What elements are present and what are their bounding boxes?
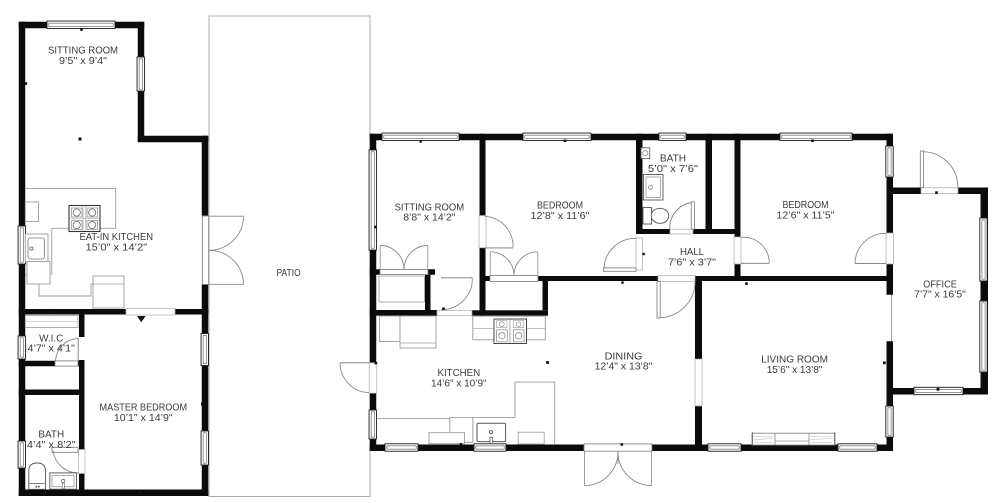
svg-text:EAT-IN KITCHEN: EAT-IN KITCHEN bbox=[80, 232, 154, 243]
svg-text:BATH: BATH bbox=[660, 154, 686, 165]
svg-text:MASTER BEDROOM: MASTER BEDROOM bbox=[100, 402, 188, 413]
svg-text:SITTING ROOM: SITTING ROOM bbox=[395, 202, 465, 213]
svg-text:KITCHEN: KITCHEN bbox=[438, 368, 481, 379]
svg-text:DINING: DINING bbox=[605, 351, 643, 362]
svg-text:4’7" x 4’1": 4’7" x 4’1" bbox=[28, 344, 76, 355]
svg-text:12’8" x 11’6": 12’8" x 11’6" bbox=[531, 211, 590, 222]
svg-text:BEDROOM: BEDROOM bbox=[783, 200, 829, 211]
svg-text:4’4" x 8’2": 4’4" x 8’2" bbox=[27, 440, 76, 451]
svg-text:10’1" x 14’9": 10’1" x 14’9" bbox=[114, 413, 173, 424]
svg-text:15’6" x 13’8": 15’6" x 13’8" bbox=[767, 365, 823, 376]
svg-text:14’6" x 10’9": 14’6" x 10’9" bbox=[431, 378, 487, 389]
svg-text:7’7" x 16’5": 7’7" x 16’5" bbox=[914, 290, 966, 301]
svg-text:SITTING ROOM: SITTING ROOM bbox=[48, 46, 118, 57]
svg-text:8’8" x 14’2": 8’8" x 14’2" bbox=[403, 213, 456, 224]
svg-text:12’6" x 11’5": 12’6" x 11’5" bbox=[777, 210, 835, 221]
svg-text:BATH: BATH bbox=[38, 430, 64, 441]
svg-text:BEDROOM: BEDROOM bbox=[537, 201, 583, 212]
svg-text:LIVING ROOM: LIVING ROOM bbox=[761, 355, 828, 366]
svg-text:9’5" x 9’4": 9’5" x 9’4" bbox=[59, 56, 107, 67]
svg-text:W.I.C: W.I.C bbox=[39, 333, 64, 344]
svg-text:15’0" x 14’2": 15’0" x 14’2" bbox=[86, 242, 148, 253]
svg-text:5’0" x 7’6": 5’0" x 7’6" bbox=[648, 164, 698, 175]
svg-text:OFFICE: OFFICE bbox=[923, 279, 957, 290]
svg-text:12’4" x 13’8": 12’4" x 13’8" bbox=[595, 362, 653, 373]
svg-text:HALL: HALL bbox=[680, 247, 704, 258]
svg-text:PATIO: PATIO bbox=[277, 268, 301, 279]
svg-text:7’6" x 3’7": 7’6" x 3’7" bbox=[668, 257, 716, 268]
